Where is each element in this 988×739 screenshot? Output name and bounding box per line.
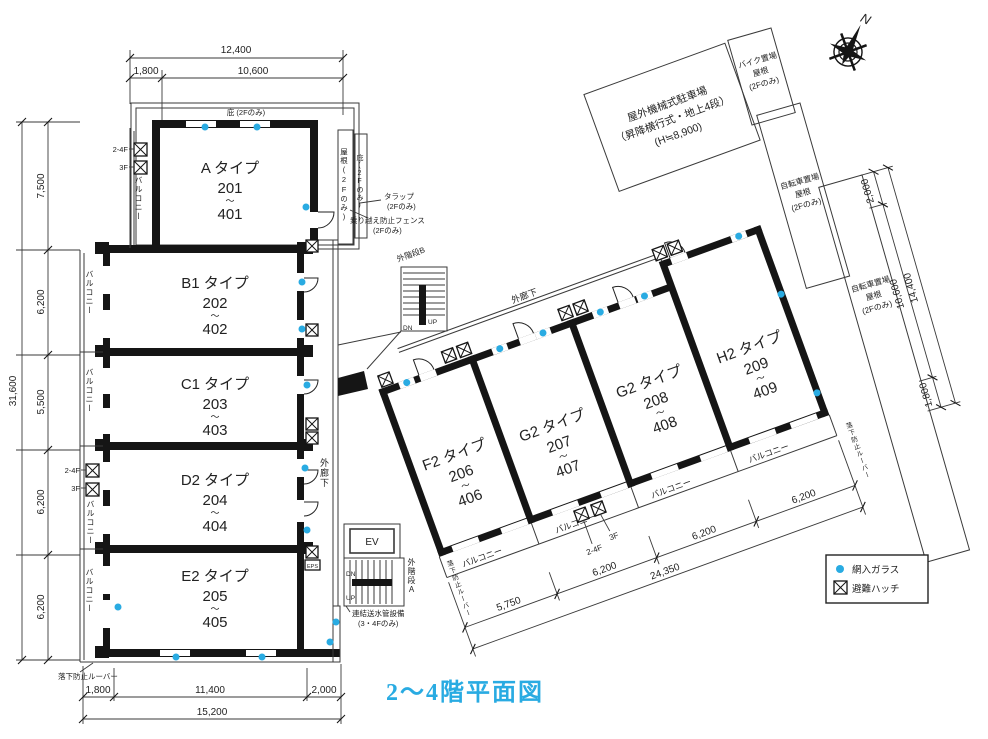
room-num-top: 205 <box>202 588 227 605</box>
dim: 1,800 <box>85 685 110 696</box>
balcony-label: バルコニー <box>649 477 692 501</box>
stair-a-dn: DN <box>346 571 356 578</box>
bicycle-label-1: 自転車置場 <box>779 171 820 192</box>
room-tilde: 〜 <box>210 412 219 422</box>
dim: 31,600 <box>8 375 19 406</box>
roof-side-label: 屋根(2Fのみ) <box>340 148 348 222</box>
dim: 5,500 <box>36 389 47 414</box>
canopy-top-label: 庇 (2Fのみ) <box>227 107 266 117</box>
bicycle-label-2: 屋根 <box>794 186 812 200</box>
bicycle-shed-roof-right: 自転車置場 屋根 (2Fのみ) 2,000 10,600 1,800 14,40… <box>818 162 988 562</box>
wired-glass-legend-icon <box>836 565 844 573</box>
bicycle-label-1: 自転車置場 <box>850 274 891 295</box>
room-num-bottom: 404 <box>202 518 227 535</box>
balcony-label: バルコニー <box>134 176 142 221</box>
room-num-bottom: 409 <box>751 379 780 404</box>
room-type: D2 タイプ <box>181 472 249 489</box>
room-num-top: 202 <box>202 295 227 312</box>
stair-a-up: UP <box>346 595 355 602</box>
door-arc <box>304 502 318 516</box>
hatch-3f-label: 3F <box>608 531 620 543</box>
room-num-bottom: 405 <box>202 614 227 631</box>
hatch-24f-label: 2-4F <box>113 145 129 154</box>
fence-label-2: (2Fのみ) <box>373 226 402 235</box>
stair-b-up: UP <box>428 319 437 326</box>
dim: 11,400 <box>195 685 225 696</box>
dim: 1,800 <box>918 381 936 409</box>
stair-b: DN UP 外階段B <box>395 244 447 332</box>
north-compass-icon: N <box>824 3 885 73</box>
room-num-top: 204 <box>202 492 227 509</box>
room-num-bottom: 403 <box>202 422 227 439</box>
room-num-bottom: 407 <box>553 457 582 482</box>
bike-shed-roof: バイク置場 屋根 (2Fのみ) <box>728 28 796 125</box>
mechanical-parking: 屋外機械式駐車場 （昇降横行式・地上4段） (H≒8,900) <box>584 43 760 191</box>
balcony-label: バルコニー <box>747 441 790 465</box>
dim: 7,500 <box>36 173 47 198</box>
bike-label-2: 屋根 <box>752 65 770 79</box>
door-arc <box>304 470 318 484</box>
dim: 2,000 <box>311 685 336 696</box>
hatch-3f-label: 3F <box>119 163 128 172</box>
bicycle-label-2: 屋根 <box>865 288 883 302</box>
legend: 網入ガラス 避難ハッチ <box>826 555 928 603</box>
room-tilde: 〜 <box>210 311 219 321</box>
hatch-24f-label: 2-4F <box>65 466 81 475</box>
balcony-label: バルコニー <box>86 500 94 545</box>
balcony-label: バルコニー <box>85 368 93 413</box>
bike-label-3: (2Fのみ) <box>748 75 780 92</box>
standpipe-label-1: 連結送水管設備 <box>352 608 405 618</box>
room-type: A タイプ <box>201 160 259 177</box>
ladder-label-2: (2Fのみ) <box>387 202 416 211</box>
dim: 15,200 <box>197 707 228 718</box>
bike-label-1: バイク置場 <box>737 50 778 71</box>
room-num-bottom: 406 <box>456 486 485 511</box>
room-num-top: 201 <box>217 180 242 197</box>
balcony-label: バルコニー <box>460 545 503 569</box>
room-num-bottom: 401 <box>217 206 242 223</box>
stair-b-label: 外階段B <box>395 244 426 263</box>
hatch-3f-label: 3F <box>71 484 80 493</box>
door-arc <box>304 278 318 292</box>
dim: 10,600 <box>238 66 269 77</box>
stair-a: DN UP <box>344 558 404 606</box>
dim: 12,400 <box>221 45 252 56</box>
dimensions: 12,400 1,800 10,600 7,500 6,200 5,500 6,… <box>8 45 347 724</box>
drawing-title: 2〜4階平面図 <box>386 672 544 707</box>
ev-label: EV <box>365 537 379 548</box>
floor-plan-svg: .w{fill:#151515;} .tl{stroke:#3a3a3a;str… <box>0 0 988 739</box>
bicycle-label-3: (2Fのみ) <box>790 196 822 213</box>
room-type: E2 タイプ <box>181 568 249 585</box>
balcony-label: バルコニー <box>85 270 93 315</box>
stair-a-label: 外階段A <box>407 558 415 595</box>
bicycle-label-3: (2Fのみ) <box>861 299 893 316</box>
standpipe-label-2: (3・4Fのみ) <box>358 619 399 628</box>
room-type: B1 タイプ <box>181 275 249 292</box>
room-tilde: 〜 <box>225 196 234 206</box>
stair-b-dn: DN <box>403 325 413 332</box>
dim: 6,200 <box>36 594 47 619</box>
room-type: C1 タイプ <box>181 376 249 393</box>
legend-escape-hatch: 避難ハッチ <box>852 583 900 595</box>
hatch-24f-label: 2-4F <box>585 543 604 557</box>
fence-label-1: 乗り越え防止フェンス <box>350 215 425 225</box>
balcony-label: バルコニー <box>85 568 93 613</box>
dim: 1,800 <box>133 66 158 77</box>
dim: 6,200 <box>36 289 47 314</box>
legend-wired-glass: 網入ガラス <box>852 564 899 576</box>
room-tilde: 〜 <box>210 604 219 614</box>
dim: 6,200 <box>36 489 47 514</box>
louver-label: 落下防止ルーバー <box>58 671 118 681</box>
ladder-label-1: タラップ <box>384 192 414 201</box>
eps-label: EPS <box>307 564 318 570</box>
dim: 2,000 <box>859 177 877 205</box>
strip-dimensions: 2,000 10,600 1,800 14,400 <box>857 162 961 415</box>
room-num-bottom: 402 <box>202 321 227 338</box>
room-tilde: 〜 <box>210 508 219 518</box>
room-num-top: 203 <box>202 396 227 413</box>
floor-plan-page: .w{fill:#151515;} .tl{stroke:#3a3a3a;str… <box>0 0 988 739</box>
corridor-label: 外廊下 <box>319 458 328 488</box>
canopy-side-label: 庇(2Fのみ) <box>356 154 363 210</box>
elevator: EV <box>344 524 400 558</box>
room-num-bottom: 408 <box>650 413 679 438</box>
